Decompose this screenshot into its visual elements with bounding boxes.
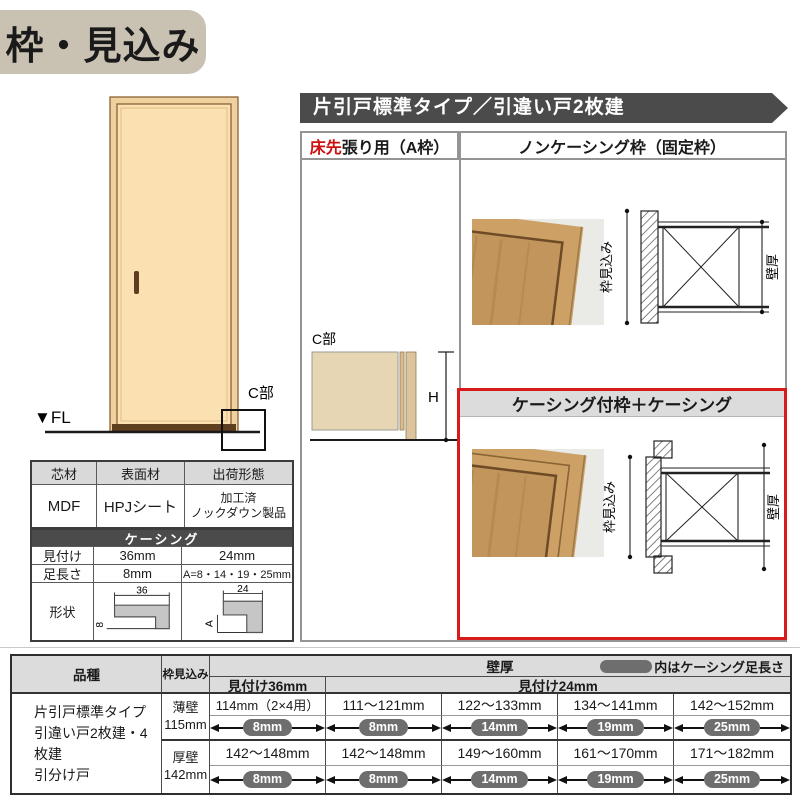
wall-thickness-dim-label: 壁厚 [765,254,780,280]
product-types-cell: 片引戸標準タイプ 引違い戸2枚建・4枚建 引分け戸 [12,694,162,793]
svg-text:8: 8 [95,621,106,627]
casing-tab-bottom [654,556,672,573]
leg-pill: 8mm [243,771,292,788]
frame-section [406,352,416,440]
h-dimension-label: H [428,389,439,406]
range-cell: 111～121mm [326,694,442,716]
casing-leg-cell: 19mm [558,766,674,793]
casing-frame-section: ケーシング付枠＋ケーシング [457,388,787,640]
casing-leg-cell: 8mm [210,716,326,741]
casing-frame-photo [472,449,604,557]
leg-pill: 14mm [471,719,527,736]
casing-leg-legend: 内はケーシング足長さ [600,656,784,676]
thick-wall-label: 厚壁 142mm [162,741,210,793]
range-cell: 114mm（2×4用） [210,694,326,716]
casing-section-header: ケーシング付枠＋ケーシング [460,391,784,417]
casing-table-title: ケーシング [32,530,292,547]
header-mitsuke-36: 見付け36mm [210,677,326,694]
section-separator [0,647,800,648]
header-mitsuke-24: 見付け24mm [326,677,790,694]
leg-pill: 8mm [359,719,408,736]
mitsuke-label: 見付け [32,547,94,565]
header-product: 品種 [12,656,162,694]
noncasing-frame-photo [472,219,604,325]
leg-pill: 25mm [704,771,760,788]
material-header-core: 芯材 [32,462,97,485]
leg-pill: 25mm [704,719,760,736]
header-wall-thickness: 壁厚 内はケーシング足長さ [210,656,790,677]
svg-text:24: 24 [237,585,249,595]
casing-leg-cell: 19mm [558,716,674,741]
legend-pill [600,660,652,673]
catalog-page: 枠・見込み ▼FL C部 芯材 表面材 出荷形態 MDF HPJシート 加工済 … [0,0,800,800]
wall-thickness-dim-label: 壁厚 [766,494,781,520]
casing-profile-36-drawing: 36 8 [94,583,182,640]
range-cell: 122～133mm [442,694,558,716]
casing-leg-cell: 8mm [326,716,442,741]
profile-24-shape [223,601,262,632]
casing-table: ケーシング 見付け 36mm 24mm 足長さ 8mm A=8・14・19・25… [30,528,294,642]
frame-types-panel: 床先張り用（A枠） ノンケーシング枠（固定枠） C部 H [300,131,787,642]
door-section [312,352,398,430]
range-cell: 142～152mm [674,694,790,716]
mitsuke-24: 24mm [182,547,292,565]
ashinaga-36: 8mm [94,565,182,583]
casing-leg-cell: 14mm [442,766,558,793]
material-shipping-value: 加工済 ノックダウン製品 [185,485,292,527]
leg-pill: 14mm [471,771,527,788]
c-part-section-drawing: C部 H [310,328,460,450]
leg-pill: 8mm [359,771,408,788]
profile-36-shape [114,605,169,628]
casing-leg-cell: 8mm [210,766,326,793]
mitsuke-36: 36mm [94,547,182,565]
casing-leg-cell: 8mm [326,766,442,793]
material-core-value: MDF [32,485,97,527]
leg-pill: 19mm [587,719,643,736]
range-cell: 171～182mm [674,741,790,766]
range-cell: 161～170mm [558,741,674,766]
keijo-label: 形状 [32,583,94,640]
range-cell: 134～141mm [558,694,674,716]
casing-leg-cell: 25mm [674,766,790,793]
svg-text:A: A [205,620,216,627]
casing-profile-24-drawing: 24 A [182,583,292,640]
range-cell: 142～148mm [326,741,442,766]
door-handle [134,271,139,294]
material-header-shipping: 出荷形態 [185,462,292,485]
frame-hatch [646,457,661,557]
casing-section-diagram: 枠見込み 壁厚 [602,433,784,585]
casing-tab-top [654,441,672,458]
panel-header-row: 床先張り用（A枠） ノンケーシング枠（固定枠） [302,133,785,160]
svg-text:36: 36 [136,585,148,596]
casing-leg-cell: 25mm [674,716,790,741]
section-title-bar: 片引戸標準タイプ／引違い戸2枚建 [300,93,788,123]
frame-hatch [641,211,658,323]
leg-pill: 19mm [587,771,643,788]
frame-depth-dim-label: 枠見込み [602,481,617,533]
door-elevation-drawing: ▼FL C部 [20,85,300,463]
range-cell: 149～160mm [442,741,558,766]
column-header-noncasing: ノンケーシング枠（固定枠） [459,133,785,158]
c-part-label: C部 [312,331,336,347]
range-cell: 142～148mm [210,741,326,766]
material-table: 芯材 表面材 出荷形態 MDF HPJシート 加工済 ノックダウン製品 [30,460,294,529]
material-surface-value: HPJシート [97,485,185,527]
column-header-a-frame: 床先張り用（A枠） [302,133,459,158]
ashinaga-label: 足長さ [32,565,94,583]
door-panel [117,104,231,425]
wall-thickness-table: 品種 枠見込み 壁厚 内はケーシング足長さ 見付け36mm 見付け24mm 片引… [10,654,792,795]
thin-wall-label: 薄壁 115mm [162,694,210,741]
c-part-label: C部 [248,385,274,402]
page-title: 枠・見込み [0,10,206,74]
casing-leg-cell: 14mm [442,716,558,741]
leg-pill: 8mm [243,719,292,736]
fl-label: ▼FL [34,408,71,427]
ashinaga-24: A=8・14・19・25mm [182,565,292,583]
header-frame-depth: 枠見込み [162,656,210,694]
frame-depth-dim-label: 枠見込み [599,241,614,293]
material-header-surface: 表面材 [97,462,185,485]
noncasing-section-diagram: 枠見込み 壁厚 [597,203,787,345]
